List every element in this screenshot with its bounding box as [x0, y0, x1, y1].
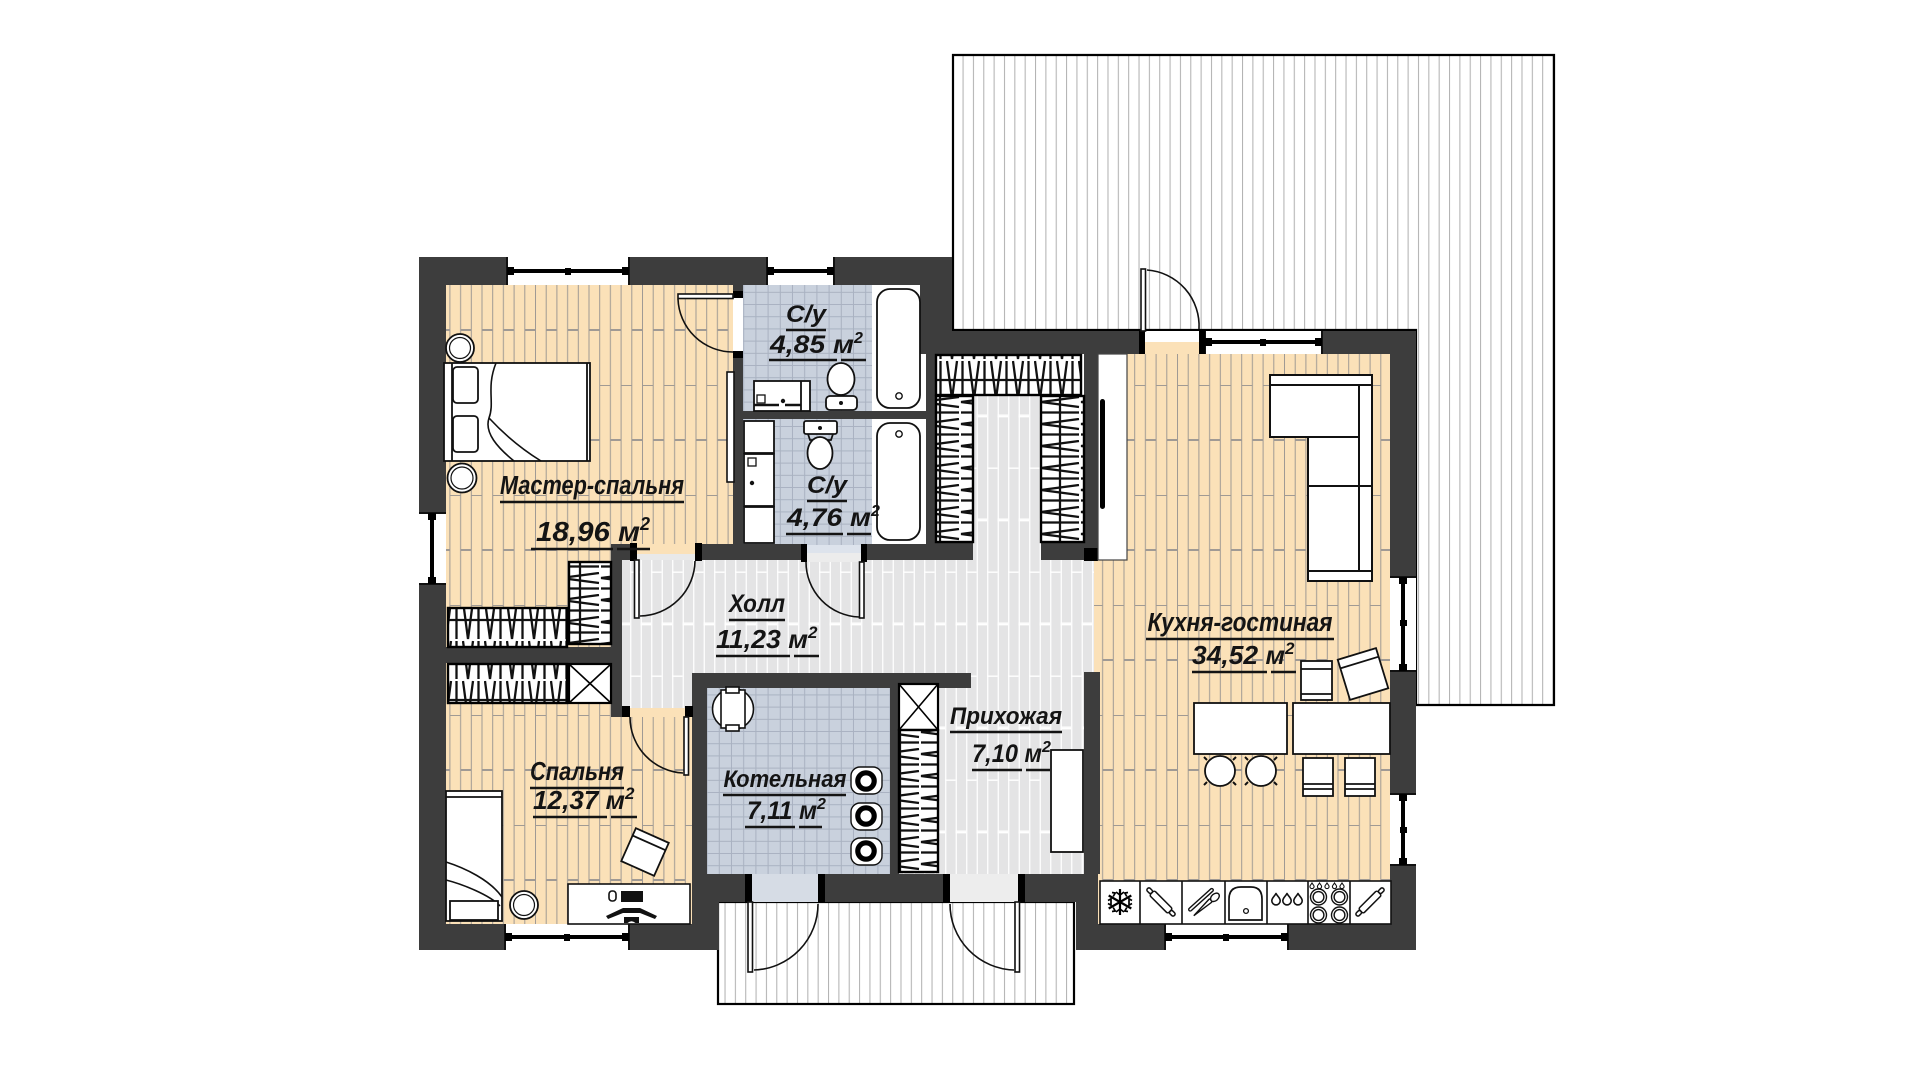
- svg-text:Котельная: Котельная: [724, 766, 847, 793]
- svg-text:Спальня: Спальня: [530, 756, 624, 786]
- svg-text:С/у: С/у: [807, 472, 849, 499]
- svg-text:7,10 м2: 7,10 м2: [972, 739, 1051, 768]
- svg-text:7,11 м2: 7,11 м2: [747, 796, 826, 825]
- svg-text:С/у: С/у: [786, 301, 828, 328]
- svg-text:12,37 м2: 12,37 м2: [533, 784, 635, 815]
- svg-text:Кухня-гостиная: Кухня-гостиная: [1148, 609, 1333, 637]
- svg-text:34,52 м2: 34,52 м2: [1192, 639, 1295, 670]
- svg-text:18,96 м2: 18,96 м2: [536, 514, 650, 547]
- svg-text:4,76 м2: 4,76 м2: [786, 503, 880, 532]
- svg-text:Прихожая: Прихожая: [950, 703, 1062, 730]
- svg-text:Мастер-спальня: Мастер-спальня: [500, 472, 684, 500]
- svg-text:4,85 м2: 4,85 м2: [769, 330, 863, 359]
- svg-text:11,23 м2: 11,23 м2: [716, 623, 818, 654]
- svg-text:Холл: Холл: [727, 590, 785, 618]
